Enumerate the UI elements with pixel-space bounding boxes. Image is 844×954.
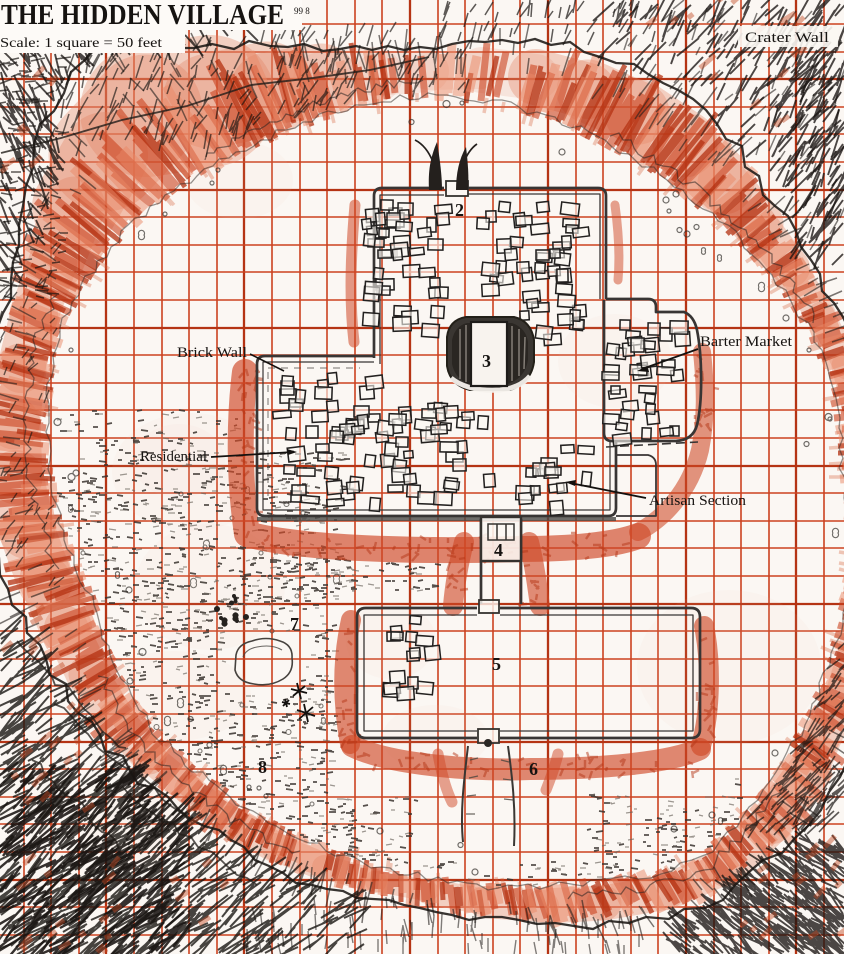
svg-text:3: 3 <box>482 351 491 371</box>
svg-text:Crater Wall: Crater Wall <box>745 30 829 46</box>
svg-text:5: 5 <box>492 654 501 674</box>
svg-text:2: 2 <box>455 200 464 220</box>
svg-text:99 8: 99 8 <box>294 6 310 16</box>
svg-text:Barter Market: Barter Market <box>700 334 792 350</box>
svg-text:Brick Wall: Brick Wall <box>177 345 247 361</box>
svg-text:Artisan Section: Artisan Section <box>649 493 747 509</box>
svg-text:7: 7 <box>290 614 299 634</box>
svg-text:8: 8 <box>258 757 267 777</box>
svg-text:4: 4 <box>494 540 503 560</box>
svg-text:THE HIDDEN VILLAGE: THE HIDDEN VILLAGE <box>1 0 284 31</box>
svg-text:6: 6 <box>529 759 538 779</box>
svg-text:Scale: 1 square = 50 feet: Scale: 1 square = 50 feet <box>0 36 162 51</box>
svg-text:Residential: Residential <box>140 449 207 465</box>
